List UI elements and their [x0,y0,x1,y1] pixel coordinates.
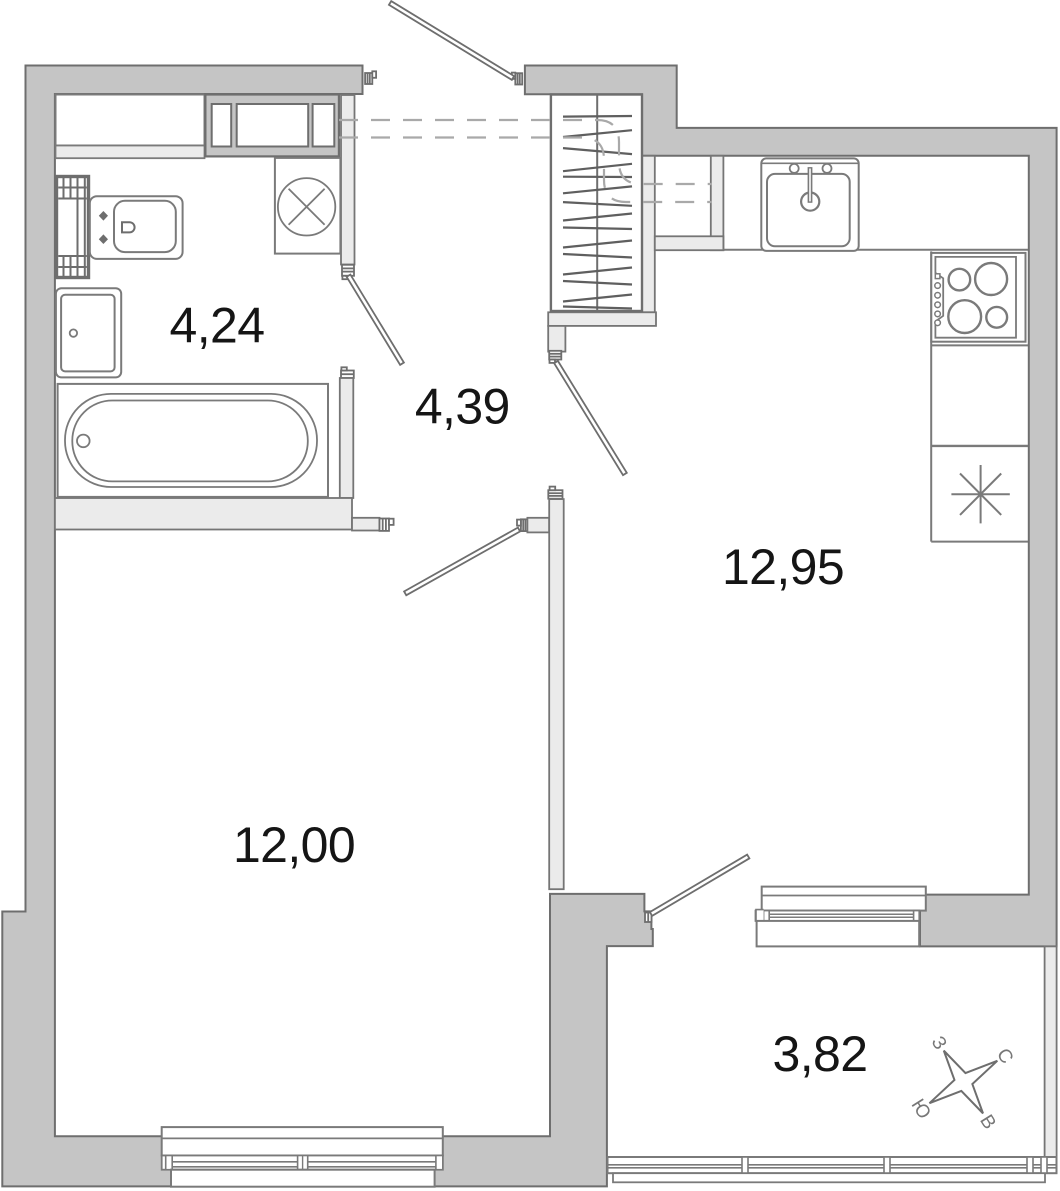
svg-text:12,95: 12,95 [722,539,844,595]
svg-text:4,39: 4,39 [415,378,510,434]
svg-text:3,82: 3,82 [773,1026,868,1082]
svg-text:12,00: 12,00 [233,817,355,873]
svg-text:4,24: 4,24 [170,297,265,353]
